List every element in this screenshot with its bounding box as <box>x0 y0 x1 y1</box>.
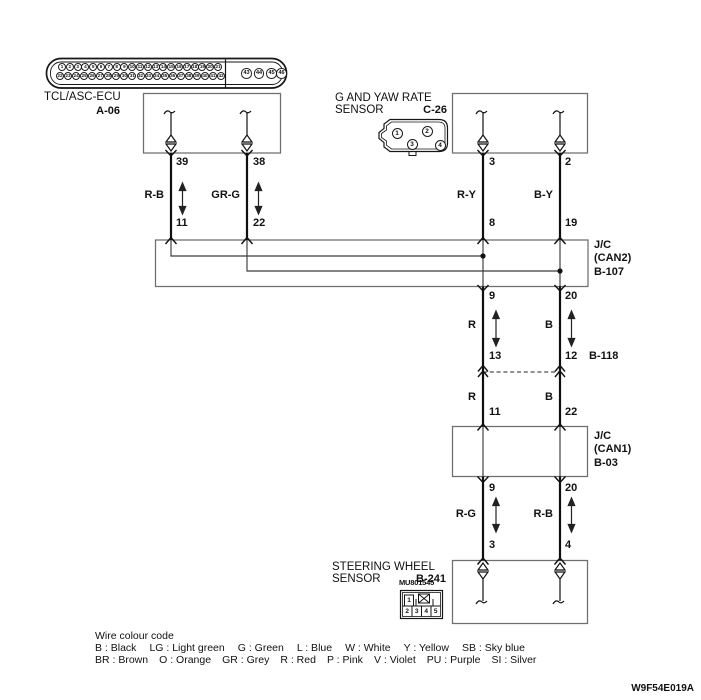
pin-label-12: 12 <box>565 350 577 362</box>
b241-pinout-cell-5: 5 <box>431 607 440 617</box>
ecu-connector-pin-9: 9 <box>120 63 128 71</box>
legend-entry: Y : Yellow <box>404 642 449 654</box>
wiring-diagram: 1234567891011121314151617181920212223242… <box>0 0 701 700</box>
ecu-connector-pin-18: 18 <box>191 63 199 71</box>
legend-entry: L : Blue <box>297 642 332 654</box>
b241-pinout-cell-4: 4 <box>422 607 431 617</box>
jc-can2-line1: J/C <box>594 239 611 251</box>
ecu-connector-pin-41: 41 <box>209 72 217 80</box>
box-jc-can2 <box>156 240 589 287</box>
ecu-connector-pin-45: 45 <box>266 68 277 79</box>
box-b241 <box>453 561 588 624</box>
ecu-connector-pin-19: 19 <box>198 63 206 71</box>
wire-label-ry: R-Y <box>416 189 476 201</box>
terminal-icons-bottom <box>476 563 565 604</box>
ecu-connector-pin-24: 24 <box>72 72 80 80</box>
doc-id-label: W9F54E019A <box>554 683 694 694</box>
wire-label-r: R <box>416 319 476 331</box>
ecu-connector-pin-16: 16 <box>175 63 183 71</box>
c26-pin-3: 3 <box>407 139 418 150</box>
pin-label-13: 13 <box>489 350 501 362</box>
b118-code-label: B-118 <box>589 350 618 362</box>
wire-label-rg: R-G <box>416 508 476 520</box>
ecu-connector-pin-26: 26 <box>88 72 96 80</box>
ecu-connector-pin-39: 39 <box>193 72 201 80</box>
box-jc-can1 <box>453 427 588 477</box>
ecu-connector-pin-6: 6 <box>97 63 105 71</box>
two-way-arrow-icon <box>568 498 574 532</box>
ecu-connector-pin-44: 44 <box>254 68 265 79</box>
ecu-connector-pin-30: 30 <box>120 72 128 80</box>
pin-label-9b: 9 <box>489 482 495 494</box>
wire-label-b2: B <box>493 391 553 403</box>
ecu-connector-pin-22: 22 <box>56 72 64 80</box>
legend-row-2: BR : BrownO : OrangeGR : GreyR : RedP : … <box>95 654 547 666</box>
jc-can2-line2: (CAN2) <box>594 252 631 264</box>
junction-dot <box>480 253 485 258</box>
can2-link-left <box>171 241 483 257</box>
ecu-connector-pin-27: 27 <box>96 72 104 80</box>
ecu-code-label: A-06 <box>44 105 120 117</box>
ecu-connector-pin-37: 37 <box>177 72 185 80</box>
connector-chevron-icons <box>166 150 566 565</box>
ecu-connector-pin-42: 42 <box>217 72 225 80</box>
ecu-connector-pin-31: 31 <box>128 72 136 80</box>
terminal-icons-top <box>164 111 565 151</box>
wire-label-rb: R-B <box>104 189 164 201</box>
pin-label-11: 11 <box>176 217 188 229</box>
b241-pinout-cell-3: 3 <box>412 607 421 617</box>
terminal-icon <box>164 111 176 151</box>
sws-name-line2: SENSOR <box>332 573 381 586</box>
pin-label-9: 9 <box>489 290 495 302</box>
pin-label-2: 2 <box>565 156 571 168</box>
gyaw-name-line1: G AND YAW RATE <box>335 92 432 105</box>
ecu-connector-pin-12: 12 <box>144 63 152 71</box>
wire-label-r2: R <box>416 391 476 403</box>
ecu-connector-pin-38: 38 <box>185 72 193 80</box>
pin-label-4: 4 <box>565 539 571 551</box>
ecu-connector-pin-43: 43 <box>241 68 252 79</box>
pin-label-19: 19 <box>565 217 577 229</box>
legend-entry: W : White <box>345 642 391 654</box>
legend-entry: G : Green <box>238 642 284 654</box>
ecu-connector-pin-7: 7 <box>105 63 113 71</box>
legend-entry: LG : Light green <box>149 642 224 654</box>
two-way-arrow-icon <box>568 311 574 346</box>
jc-can1-line3: B-03 <box>594 457 618 469</box>
box-c26 <box>453 94 588 154</box>
legend-entry: BR : Brown <box>95 654 148 666</box>
pin-label-3: 3 <box>489 156 495 168</box>
legend-entry: V : Violet <box>374 654 416 666</box>
legend-entry: P : Pink <box>327 654 363 666</box>
pin-label-20: 20 <box>565 290 577 302</box>
legend-entry: R : Red <box>280 654 316 666</box>
pin-label-8: 8 <box>489 217 495 229</box>
sws-name-line1: STEERING WHEEL <box>332 561 435 574</box>
pin-label-11b: 11 <box>489 406 501 418</box>
b241-pinout-cell-1: 1 <box>405 596 414 606</box>
wires <box>171 153 560 561</box>
legend-entry: GR : Grey <box>222 654 269 666</box>
ecu-connector-pin-33: 33 <box>145 72 153 80</box>
legend-entry: O : Orange <box>159 654 211 666</box>
ecu-connector-pin-10: 10 <box>128 63 136 71</box>
legend-entry: SB : Sky blue <box>462 642 525 654</box>
ecu-connector-pin-40: 40 <box>201 72 209 80</box>
ecu-connector-pin-29: 29 <box>112 72 120 80</box>
ecu-connector-pin-13: 13 <box>152 63 160 71</box>
ecu-connector-pin-11: 11 <box>136 63 144 71</box>
ecu-connector-pin-8: 8 <box>113 63 121 71</box>
gyaw-code-label: C-26 <box>393 104 447 116</box>
ecu-connector-pin-1: 1 <box>58 63 66 71</box>
ecu-connector-pin-2: 2 <box>66 63 74 71</box>
legend-entry: PU : Purple <box>427 654 481 666</box>
ecu-connector-pin-grid: 1234567891011121314151617181920212223242… <box>46 58 287 88</box>
terminal-icon <box>553 563 565 604</box>
ecu-connector-pin-34: 34 <box>153 72 161 80</box>
c26-pin-4: 4 <box>435 140 446 151</box>
two-way-arrow-icon <box>255 183 261 214</box>
box-a06 <box>144 94 281 154</box>
wire-label-grg: GR-G <box>180 189 240 201</box>
pin-label-39: 39 <box>176 156 188 168</box>
sws-part-number: MU801545 <box>399 579 434 587</box>
ecu-connector-pin-36: 36 <box>169 72 177 80</box>
c26-pin-2: 2 <box>422 126 433 137</box>
ecu-connector-pin-21: 21 <box>214 63 222 71</box>
legend-title: Wire colour code <box>95 630 174 642</box>
ecu-connector-pin-4: 4 <box>81 63 89 71</box>
two-way-arrow-icons <box>179 183 574 532</box>
ecu-connector-pin-23: 23 <box>64 72 72 80</box>
terminal-icon <box>476 563 488 604</box>
pin-label-22: 22 <box>253 217 265 229</box>
ecu-connector-pin-35: 35 <box>161 72 169 80</box>
ecu-connector-pin-20: 20 <box>206 63 214 71</box>
ecu-connector-pin-32: 32 <box>137 72 145 80</box>
legend-entry: SI : Silver <box>491 654 536 666</box>
terminal-icon <box>240 111 252 151</box>
terminal-icon <box>553 111 565 151</box>
ecu-connector-pin-46: 46 <box>276 68 287 79</box>
ecu-connector-pin-5: 5 <box>89 63 97 71</box>
ecu-connector-pin-3: 3 <box>74 63 82 71</box>
gyaw-name-line2: SENSOR <box>335 104 384 117</box>
ecu-connector-pin-15: 15 <box>167 63 175 71</box>
ecu-name-label: TCL/ASC-ECU <box>44 91 121 104</box>
c26-pin-1: 1 <box>392 128 403 139</box>
jc-can2-line3: B-107 <box>594 266 624 278</box>
pin-label-38: 38 <box>253 156 265 168</box>
ecu-connector-pin-28: 28 <box>104 72 112 80</box>
junction-internal-links <box>171 241 560 477</box>
pin-label-22b: 22 <box>565 406 577 418</box>
component-boxes <box>144 94 589 624</box>
ecu-connector-pin-14: 14 <box>159 63 167 71</box>
ecu-connector-pin-25: 25 <box>80 72 88 80</box>
jc-can1-line2: (CAN1) <box>594 443 631 455</box>
b241-pinout-cell-2: 2 <box>403 607 412 617</box>
junction-dot <box>557 268 562 273</box>
wire-label-b: B <box>493 319 553 331</box>
wire-label-by: B-Y <box>493 189 553 201</box>
pin-label-20b: 20 <box>565 482 577 494</box>
legend-row-1: B : BlackLG : Light greenG : GreenL : Bl… <box>95 642 538 654</box>
jc-can1-line1: J/C <box>594 430 611 442</box>
wire-label-rb2: R-B <box>493 508 553 520</box>
ecu-connector-pin-17: 17 <box>183 63 191 71</box>
pin-label-3b: 3 <box>489 539 495 551</box>
terminal-icon <box>476 111 488 151</box>
legend-entry: B : Black <box>95 642 136 654</box>
